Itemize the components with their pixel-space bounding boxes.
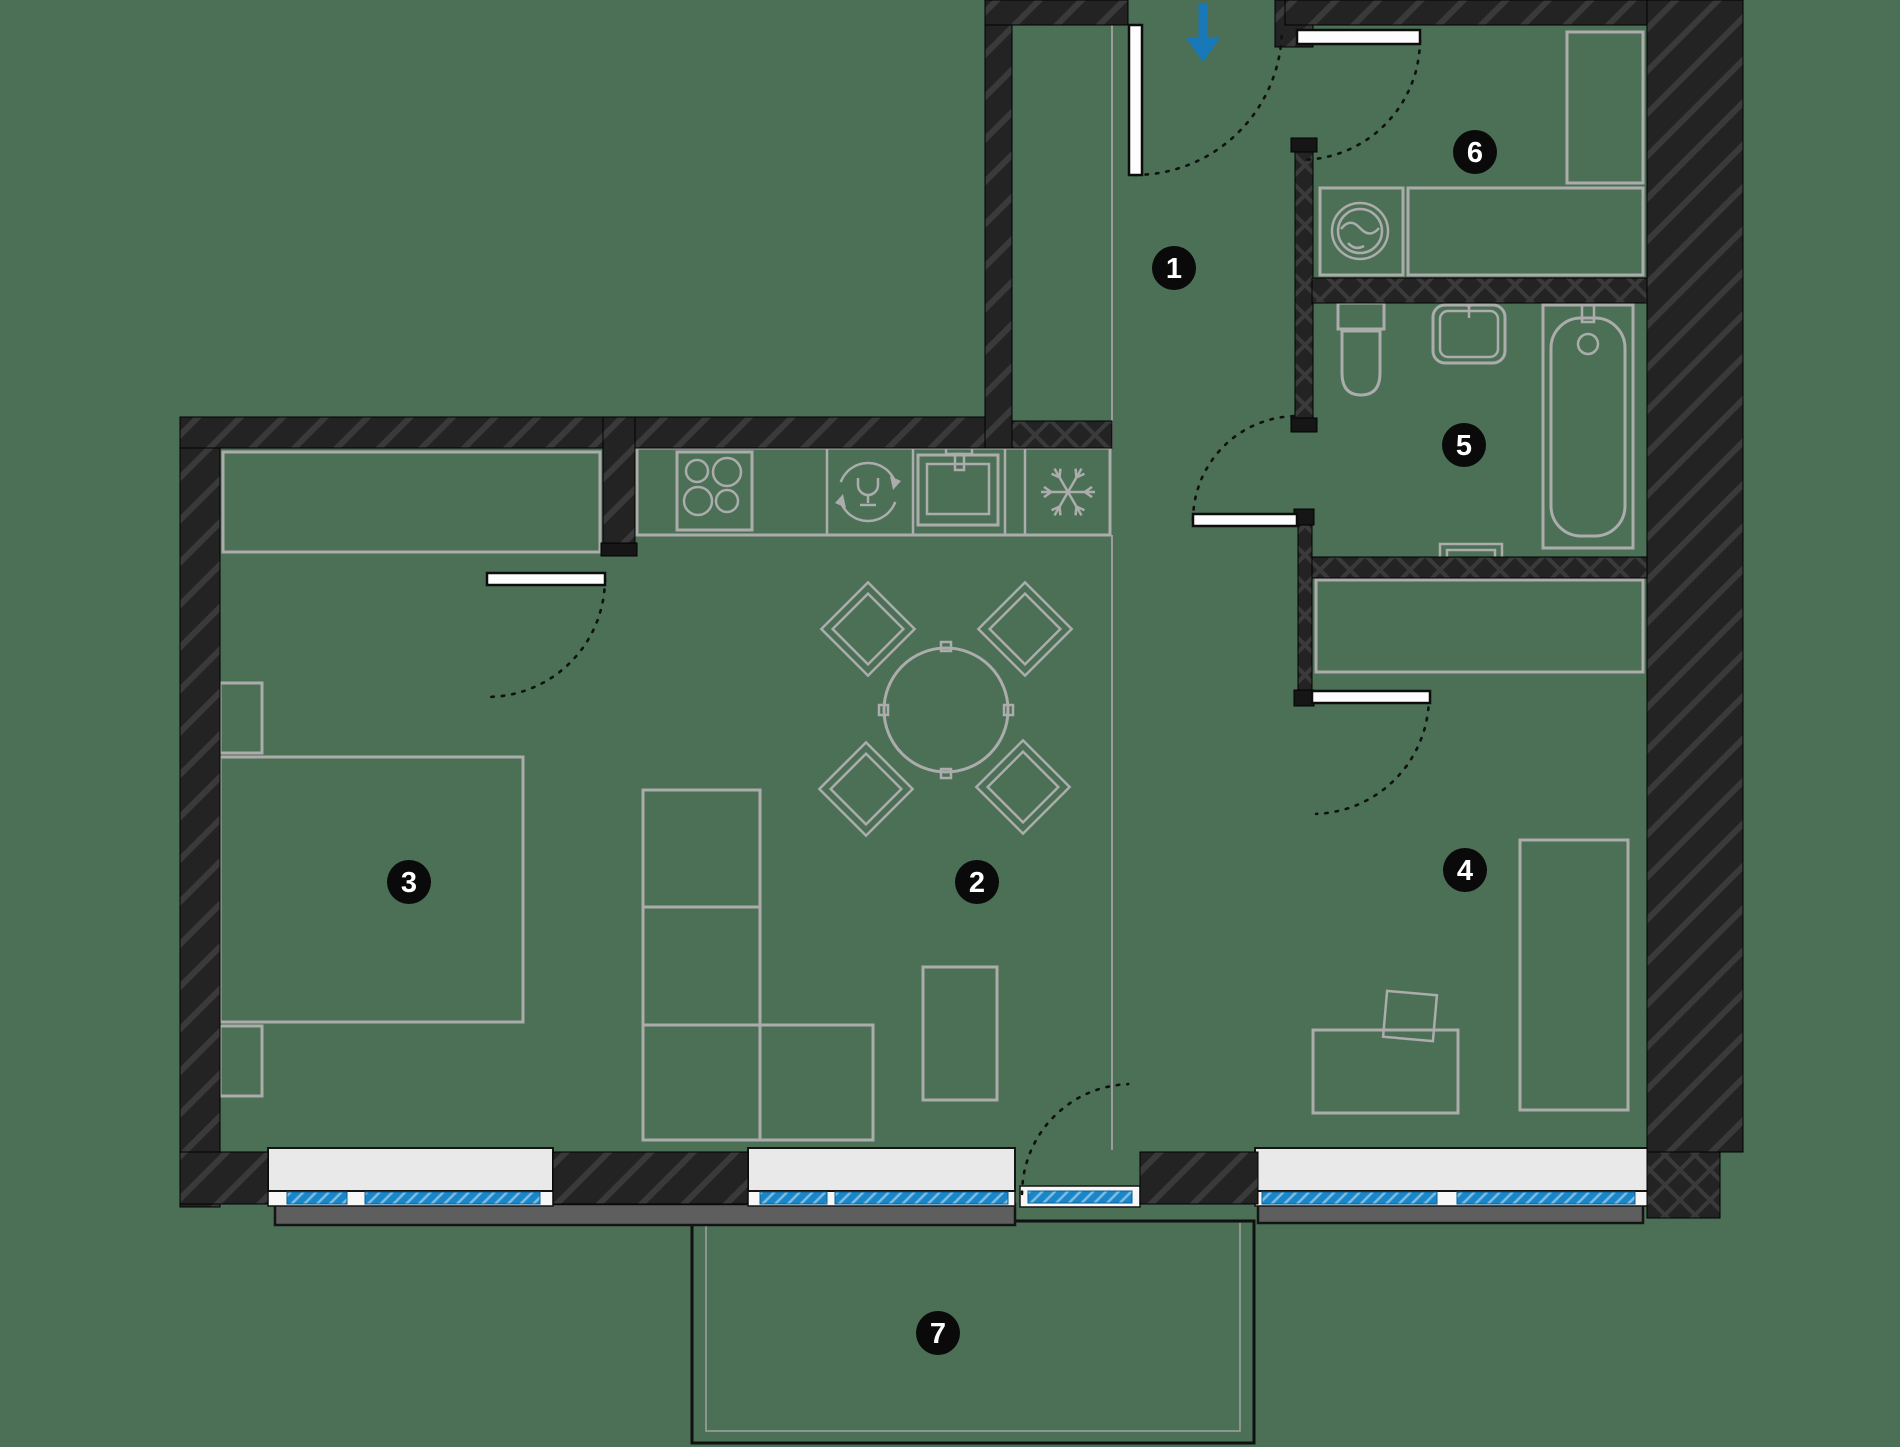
room3-door-leaf (487, 573, 605, 585)
balcony-door-glass (1028, 1191, 1132, 1203)
bottom-wall-mid (553, 1152, 748, 1204)
tall-cabinet (1567, 32, 1643, 183)
wine-glass-icon (858, 478, 878, 495)
entrance-arrow-icon (1186, 38, 1220, 62)
door-swing-arc (491, 579, 605, 697)
wardrobe (223, 452, 600, 552)
room-badge-label-1: 1 (1166, 253, 1182, 285)
bottom-wall-left (180, 1152, 268, 1204)
chair (821, 582, 914, 675)
bed (220, 757, 523, 1022)
nightstand (220, 1026, 262, 1096)
room-badge-label-2: 2 (969, 867, 985, 899)
left-wing-top-wall (180, 417, 1012, 448)
door-jamb (1291, 418, 1317, 432)
toilet-tank (1338, 303, 1384, 329)
window-glass (287, 1192, 347, 1204)
room5-bottom-wall (1312, 557, 1647, 578)
toilet-bowl (1342, 331, 1380, 395)
exterior-sill (1258, 1204, 1643, 1223)
room6-door-leaf (1297, 30, 1420, 44)
towel-radiator (1447, 550, 1495, 557)
shelf-unit (643, 790, 760, 907)
chair (990, 594, 1061, 665)
kitchen-room3-wall (603, 417, 635, 547)
washer-wave-icon (1348, 243, 1364, 248)
hall-room6-wall (1295, 150, 1313, 422)
exterior-wall-right (1647, 0, 1743, 1152)
door-swing-arc (1193, 416, 1293, 520)
floor-plan: 1234567 (0, 0, 1900, 1447)
exterior-wall-left (180, 417, 220, 1207)
room6-room5-wall (1312, 278, 1647, 303)
balcony-outline (692, 1221, 1254, 1443)
burner-icon (713, 458, 741, 486)
window-glass (1457, 1192, 1635, 1204)
window-sill (748, 1148, 1015, 1191)
chair (988, 752, 1059, 823)
washing-machine-icon (1332, 203, 1388, 259)
chair (819, 742, 912, 835)
door-jamb (1291, 138, 1317, 152)
shelf-unit (643, 907, 760, 1025)
laundry-counter (1408, 188, 1643, 275)
chair (831, 754, 902, 825)
dishwasher-icon (841, 463, 896, 482)
chair (833, 594, 904, 665)
door-swing-arc (1304, 40, 1420, 160)
exterior-sill (275, 1204, 1015, 1225)
room6-top-wall (1285, 0, 1647, 25)
washer-wave-icon (1341, 223, 1379, 234)
nightstand (220, 683, 262, 753)
desk-chair (1383, 991, 1437, 1041)
floor-plan-page: 1234567 (0, 0, 1900, 1447)
window-glass (1262, 1192, 1437, 1204)
bed (1520, 840, 1628, 1110)
bathtub-drain-icon (1578, 334, 1598, 354)
entry-top-wall (985, 0, 1128, 25)
room-badge-label-7: 7 (930, 1318, 946, 1350)
shelf-unit (760, 1025, 873, 1140)
burner-icon (684, 487, 712, 515)
kitchen-sink-basin (927, 464, 989, 514)
hall-closet-wall (1298, 523, 1312, 692)
dishwasher-arrow-icon (835, 494, 846, 508)
entrance-door-leaf (1129, 25, 1142, 175)
door-swing-arc (1135, 33, 1282, 175)
bottom-wall-hall (1140, 1152, 1258, 1204)
window-glass (835, 1192, 1008, 1204)
bathtub-basin (1551, 318, 1625, 536)
coffee-table (923, 967, 997, 1100)
door-jamb (601, 543, 637, 556)
window-sill (268, 1148, 553, 1191)
room-badge-label-5: 5 (1456, 430, 1472, 462)
desk (1313, 1030, 1458, 1113)
room-badge-label-6: 6 (1467, 137, 1483, 169)
door-swing-arc (1316, 697, 1429, 814)
dishwasher-arrow-icon (890, 476, 901, 490)
burner-icon (686, 460, 708, 482)
chair (978, 582, 1071, 675)
window-sill (1255, 1148, 1648, 1191)
shelf-unit (643, 1025, 760, 1140)
bottom-wall-right-corner (1647, 1152, 1720, 1218)
snowflake-icon (1041, 469, 1095, 516)
room-badge-label-4: 4 (1457, 855, 1473, 887)
window-glass (760, 1192, 827, 1204)
kitchen-top-wall (1012, 421, 1112, 448)
room4-door-leaf (1312, 691, 1430, 703)
bathtub (1543, 305, 1633, 548)
hall-closet (1316, 580, 1643, 672)
burner-icon (716, 490, 738, 512)
window-glass (365, 1192, 540, 1204)
hall-left-wall (985, 0, 1012, 448)
dining-table (884, 648, 1008, 772)
room-badge-label-3: 3 (401, 867, 417, 899)
balcony-inner-line (706, 1223, 1240, 1431)
room5-door-leaf (1193, 514, 1297, 526)
